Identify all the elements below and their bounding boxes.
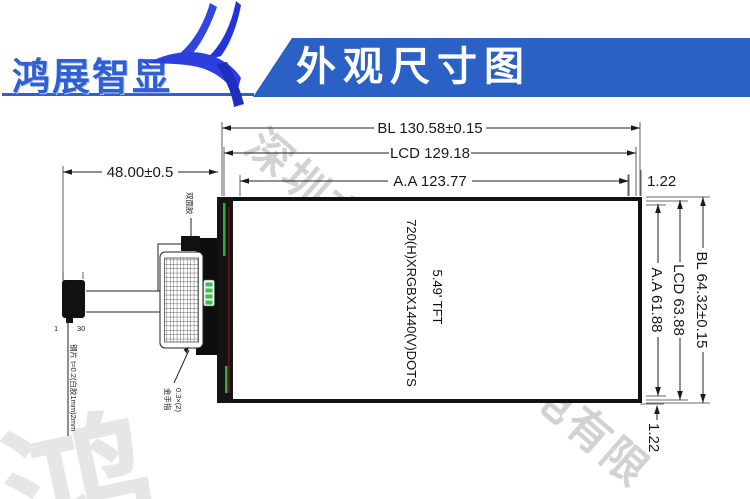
gold-finger-label: 金手指 — [163, 388, 173, 411]
green-indicator — [204, 280, 215, 306]
page-title: 外观尺寸图 — [296, 38, 531, 97]
lcd-module-outline — [217, 197, 640, 403]
title-banner: 外观尺寸图 — [253, 38, 750, 97]
dimension-bl-height: BL 64.32±0.15 — [693, 197, 710, 403]
svg-text:1.22: 1.22 — [647, 173, 676, 190]
svg-text:BL 130.58±0.15: BL 130.58±0.15 — [377, 120, 482, 137]
fpc-component — [181, 236, 200, 251]
svg-text:A.A 61.88: A.A 61.88 — [648, 267, 665, 332]
svg-text:LCD 63.88: LCD 63.88 — [670, 264, 687, 336]
watermark-corner-char: 鸿 — [0, 394, 171, 499]
dimension-lcd-height: LCD 63.88 — [670, 200, 687, 400]
dimension-gap-bottom-right: 1.22 — [640, 404, 664, 452]
connector — [62, 280, 85, 318]
lcd-dimension-drawing-page: 深圳市鸿展智显光电有限 鸿 — [0, 0, 750, 499]
dimension-aa-height: A.A 61.88 — [648, 204, 665, 396]
pin-first-label: 1 — [54, 324, 58, 333]
svg-text:48.00±0.5: 48.00±0.5 — [107, 164, 174, 181]
gold-finger-grid — [160, 252, 203, 348]
stiffener-label: 双面胶 — [185, 192, 195, 215]
gold-finger-spec: 0.3×(2) — [174, 388, 183, 412]
pin-last-label: 30 — [77, 324, 85, 333]
panel-resolution-text: 720(H)XRGBX1440(V)DOTS — [404, 219, 419, 387]
svg-text:BL 64.32±0.15: BL 64.32±0.15 — [693, 252, 710, 349]
svg-text:A.A 123.77: A.A 123.77 — [393, 173, 466, 190]
svg-text:1.22: 1.22 — [645, 423, 662, 452]
bird-logo-icon — [140, 0, 260, 108]
steel-label: 钢片 t=0.2(白胶1mm)2mm — [69, 344, 79, 431]
panel-size-text: 5.49' TFT — [430, 270, 445, 325]
svg-text:LCD 129.18: LCD 129.18 — [390, 145, 470, 162]
